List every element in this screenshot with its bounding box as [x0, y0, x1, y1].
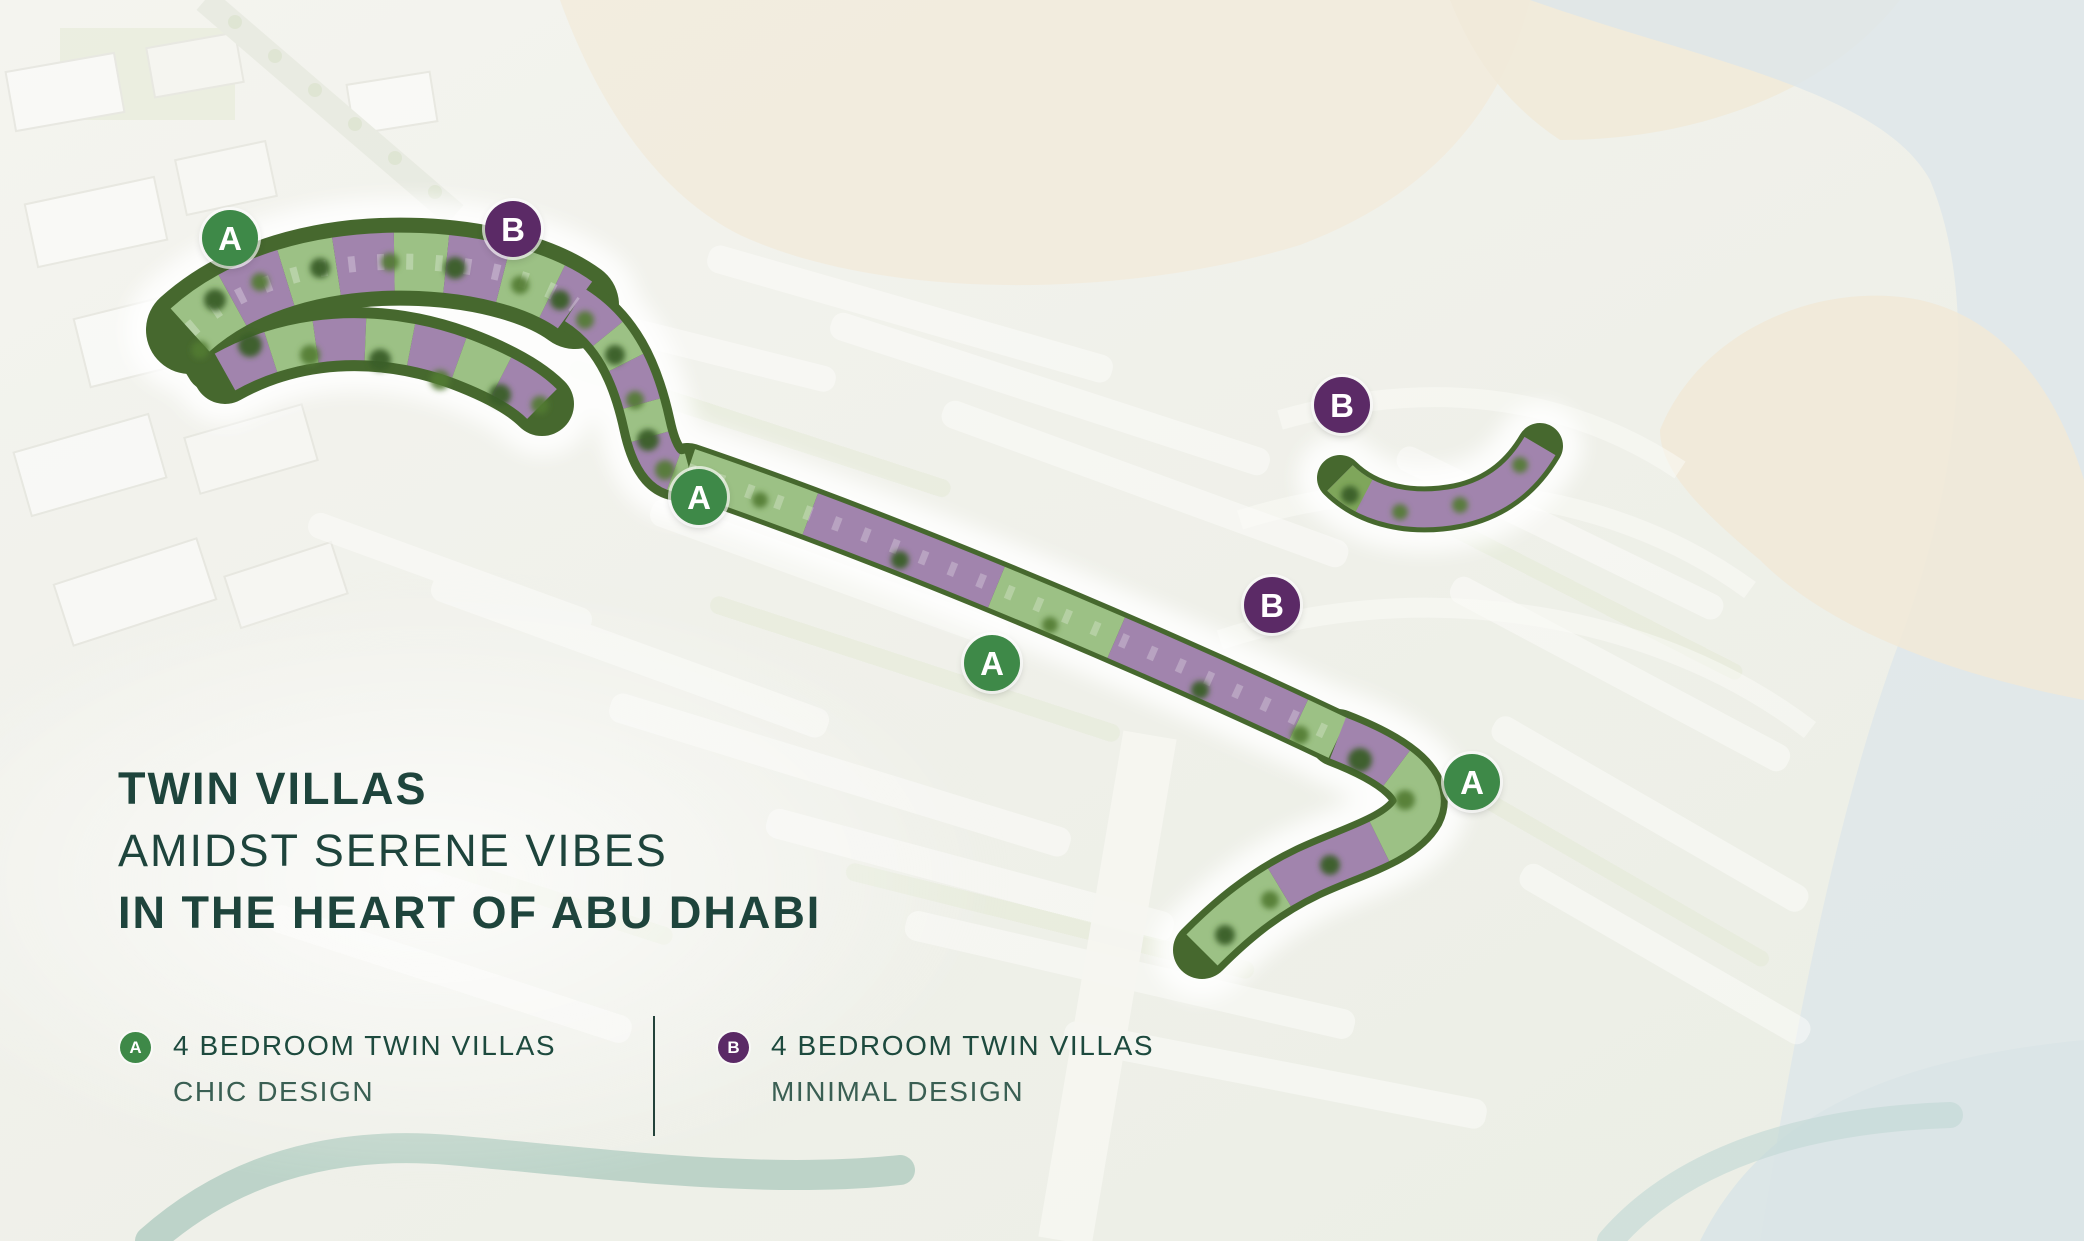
legend-a-subtitle: CHIC DESIGN	[173, 1076, 556, 1108]
headline-block: TWIN VILLAS AMIDST SERENE VIBES IN THE H…	[118, 758, 821, 944]
legend-a-title: 4 BEDROOM TWIN VILLAS	[173, 1030, 556, 1062]
headline-line-1: TWIN VILLAS	[118, 758, 821, 820]
legend-item-a: A 4 BEDROOM TWIN VILLAS CHIC DESIGN	[120, 1030, 556, 1108]
legend-item-b: B 4 BEDROOM TWIN VILLAS MINIMAL DESIGN	[718, 1030, 1154, 1108]
legend: A 4 BEDROOM TWIN VILLAS CHIC DESIGN B 4 …	[0, 1016, 2084, 1156]
legend-b-title: 4 BEDROOM TWIN VILLAS	[771, 1030, 1154, 1062]
headline-line-2: AMIDST SERENE VIBES	[118, 820, 821, 882]
legend-divider	[653, 1016, 655, 1136]
headline-line-3: IN THE HEART OF ABU DHABI	[118, 882, 821, 944]
legend-badge-a: A	[120, 1032, 151, 1063]
legend-badge-b: B	[718, 1032, 749, 1063]
masterplan-hero-image: ABABBAA TWIN VILLAS AMIDST SERENE VIBES …	[0, 0, 2084, 1241]
legend-b-subtitle: MINIMAL DESIGN	[771, 1076, 1154, 1108]
